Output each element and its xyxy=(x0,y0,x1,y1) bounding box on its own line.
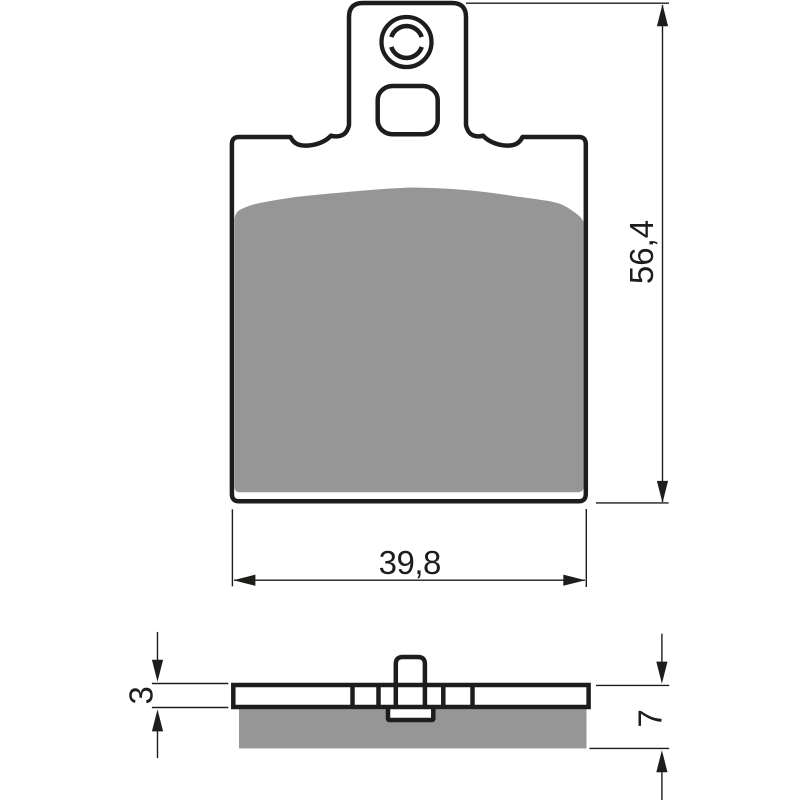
svg-text:56,4: 56,4 xyxy=(623,220,660,284)
svg-text:7: 7 xyxy=(631,709,668,727)
svg-text:39,8: 39,8 xyxy=(379,544,441,581)
svg-text:3: 3 xyxy=(123,686,160,704)
